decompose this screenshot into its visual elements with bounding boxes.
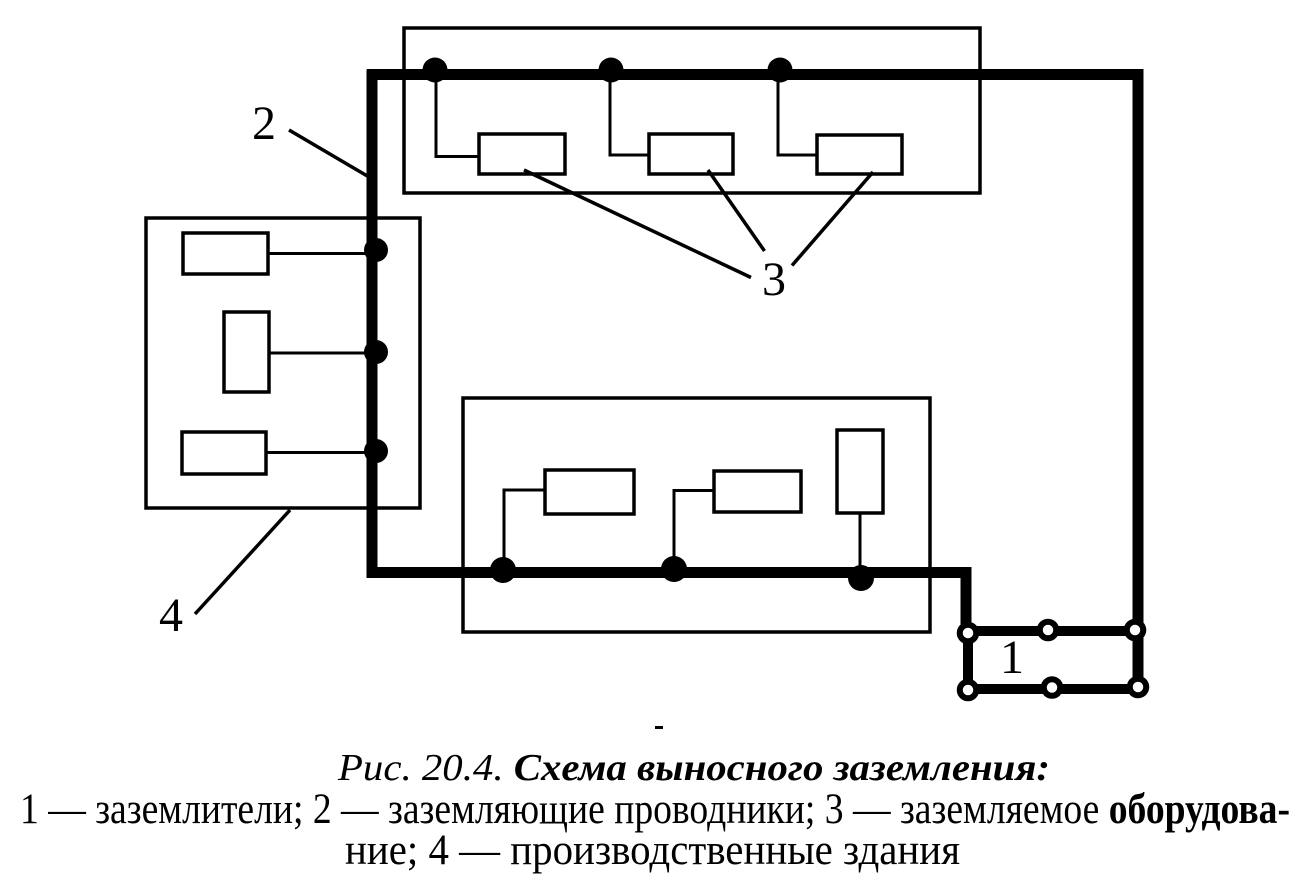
svg-text:1 — заземлители; 2 — заземляющ: 1 — заземлители; 2 — заземляющие проводн… (20, 786, 1290, 833)
svg-text:2: 2 (252, 97, 276, 150)
svg-text:1: 1 (1000, 631, 1024, 684)
svg-text:ние; 4 — производственные здан: ние; 4 — производственные здания (345, 827, 960, 874)
svg-text:4: 4 (159, 589, 183, 642)
svg-text:3: 3 (762, 253, 786, 306)
svg-text:Рис. 20.4. Схема выносного заз: Рис. 20.4. Схема выносного заземления: (337, 747, 1050, 789)
